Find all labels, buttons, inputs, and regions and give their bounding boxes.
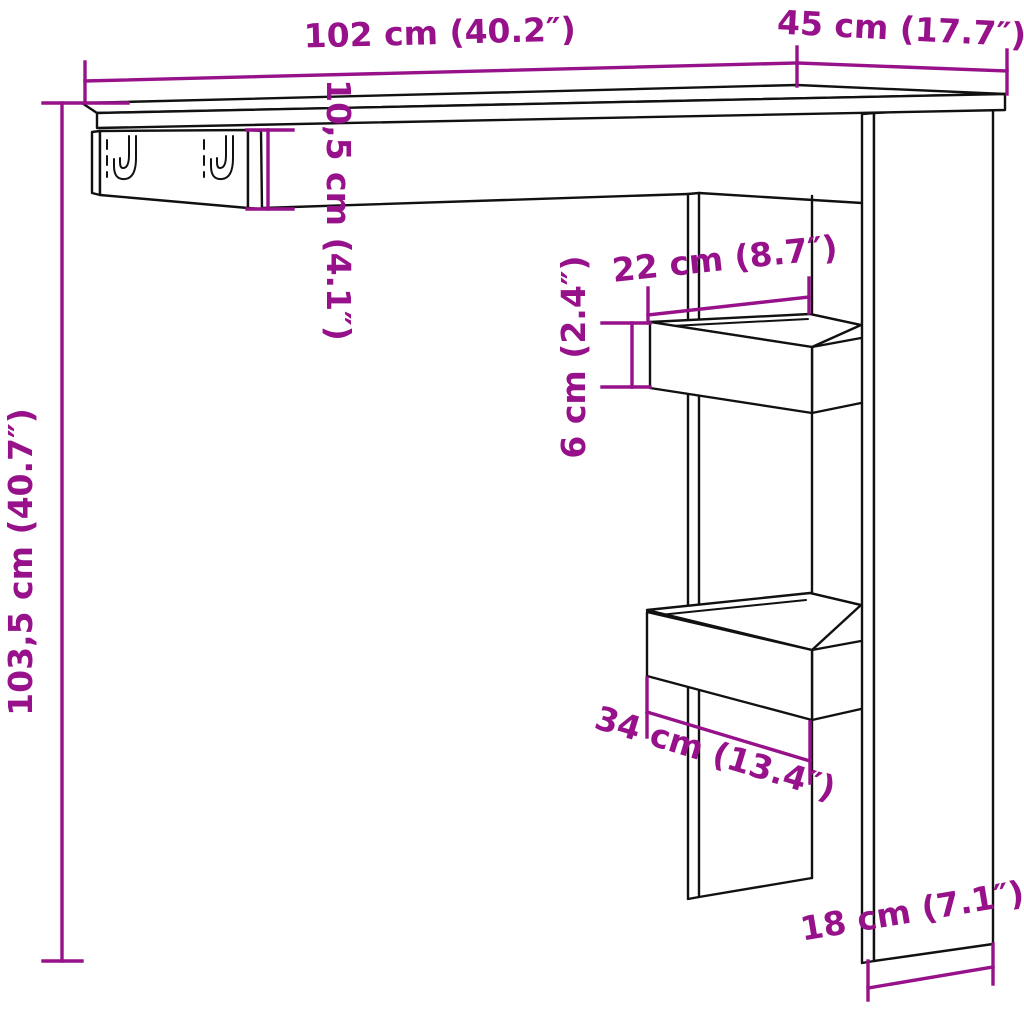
upper-tray-right-bottom-edge [812,403,861,413]
rail-right-cap [248,130,262,209]
side-panel-front-face [874,107,993,961]
wall-mount-rail [92,130,262,209]
dimension-overall-height: 103,5 cm (40.7″) [1,103,128,961]
dimension-label-top-depth: 45 cm (17.7″) [776,3,1024,55]
side-panel-left-edge [862,113,874,963]
lower-tray-right-bottom-edge [812,709,861,720]
lower-shelf-tray [647,593,861,720]
dimension-line [648,297,809,315]
dimension-line [868,967,993,988]
side-panel-leg [862,107,993,963]
dimension-line [797,63,1007,71]
dimension-label-upper-shelf-depth: 22 cm (8.7″) [610,227,839,289]
dimension-line [85,63,797,81]
dimension-label-top-width: 102 cm (40.2″) [303,9,576,55]
upper-shelf-tray [650,314,861,413]
dimension-label-rail-height: 10,5 cm (4.1″) [319,79,358,341]
dimension-label-overall-height: 103,5 cm (40.7″) [1,408,40,716]
dimension-top-depth: 45 cm (17.7″) [776,3,1024,94]
dimension-upper-shelf-depth: 22 cm (8.7″) [610,227,839,323]
center-panel-bottom-edge [699,878,812,897]
under-top-apron-right [699,193,862,203]
wall-bar-table-dimension-diagram: 102 cm (40.2″) 45 cm (17.7″) 103,5 cm (4… [0,0,1024,1024]
center-panel-front-edge [688,193,699,899]
dimension-label-upper-shelf-rim-height: 6 cm (2.4″) [554,255,593,458]
